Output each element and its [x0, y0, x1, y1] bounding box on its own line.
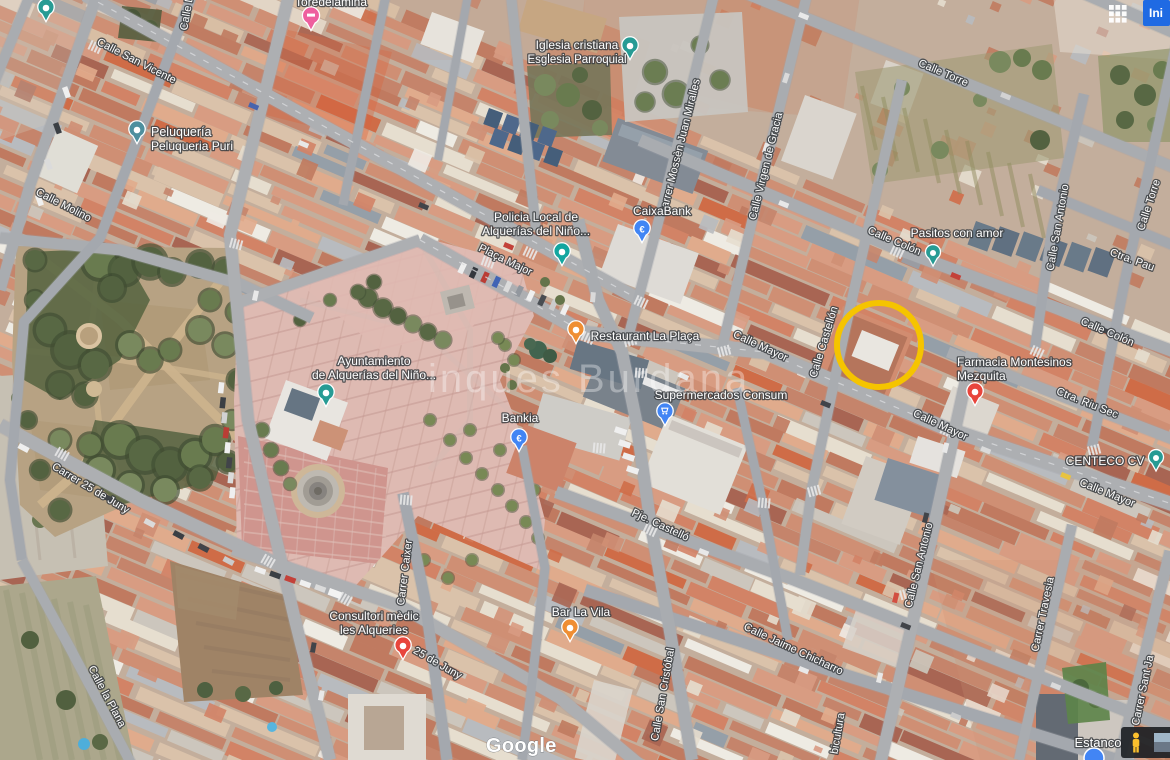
- svg-text:Peluqueria Puri: Peluqueria Puri: [151, 139, 233, 153]
- svg-text:€: €: [639, 224, 645, 235]
- svg-text:Consultori mèdic: Consultori mèdic: [329, 609, 418, 623]
- svg-text:Iglesia cristiana: Iglesia cristiana: [536, 38, 619, 52]
- svg-text:Toredelamina: Toredelamina: [295, 0, 367, 9]
- svg-text:Esglesia Parroquial: Esglesia Parroquial: [527, 54, 626, 66]
- svg-text:inques Burdana: inques Burdana: [428, 357, 750, 401]
- svg-text:Alquerías del Niño...: Alquerías del Niño...: [482, 224, 590, 238]
- svg-text:Farmacia Montesinos: Farmacia Montesinos: [957, 355, 1072, 369]
- svg-text:Pasitos con amor: Pasitos con amor: [911, 226, 1004, 240]
- svg-text:Bar La Vila: Bar La Vila: [552, 605, 611, 619]
- svg-text:Ayuntamiento: Ayuntamiento: [337, 354, 410, 368]
- svg-text:Google: Google: [486, 735, 557, 757]
- svg-text:Estanco: Estanco: [1075, 735, 1122, 750]
- svg-text:€: €: [516, 433, 522, 444]
- svg-text:CENTECO CV: CENTECO CV: [1066, 454, 1145, 468]
- svg-text:de Alquerías del Niño...: de Alquerías del Niño...: [312, 368, 436, 382]
- svg-text:Peluquería: Peluquería: [151, 125, 212, 139]
- svg-text:Bankia: Bankia: [502, 411, 539, 425]
- svg-text:Ini: Ini: [1149, 6, 1163, 20]
- svg-text:Policia Local de: Policia Local de: [494, 210, 578, 224]
- svg-text:CaixaBank: CaixaBank: [633, 204, 692, 218]
- svg-text:les Alqueries: les Alqueries: [340, 623, 408, 637]
- svg-text:Mezquita: Mezquita: [957, 369, 1006, 383]
- svg-text:Restaurant La Plaça: Restaurant La Plaça: [591, 329, 700, 343]
